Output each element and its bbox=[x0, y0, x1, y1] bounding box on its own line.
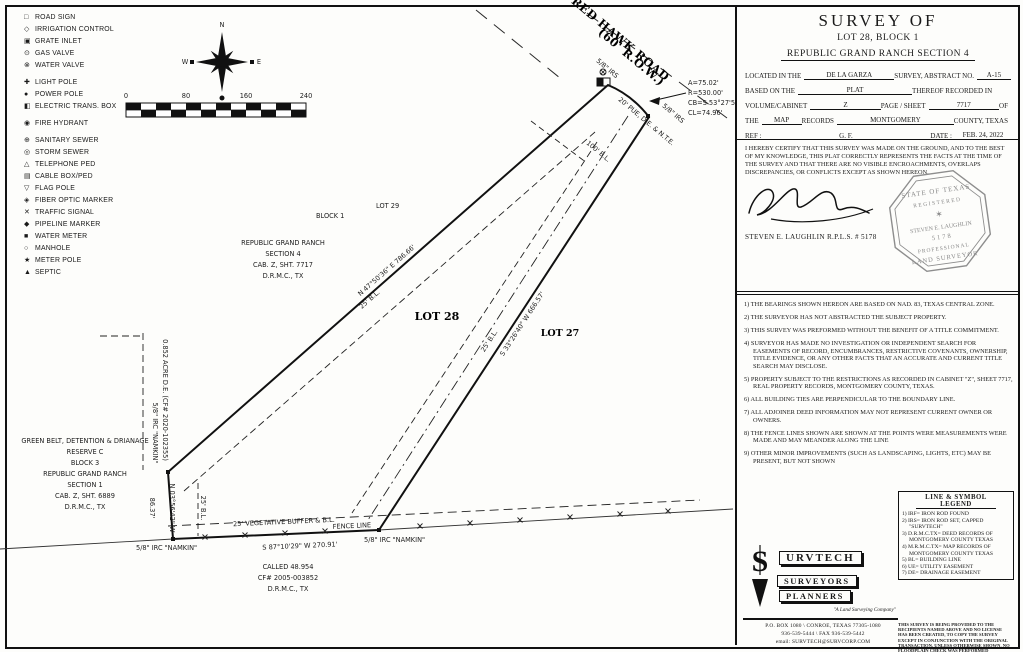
legend-label: FLAG POLE bbox=[35, 185, 75, 192]
legend-item: ▤CABLE BOX/PED bbox=[24, 170, 116, 182]
greenbelt-line7: D.R.M.C., TX bbox=[65, 503, 106, 511]
form-label: LOCATED IN THE bbox=[745, 72, 804, 80]
divider bbox=[737, 291, 1019, 292]
greenbelt-line4: REPUBLIC GRAND RANCH bbox=[43, 470, 127, 478]
legend-label: SEPTIC bbox=[35, 269, 61, 276]
form-label: VOLUME/CABINET bbox=[745, 102, 810, 110]
divider bbox=[737, 139, 1019, 140]
note-7: 7) ALL ADJOINER DEED INFORMATION MAY NOT… bbox=[744, 409, 1014, 424]
irrigation-control-icon: ◇ bbox=[24, 25, 35, 33]
compass-w-label: W bbox=[182, 58, 189, 66]
company-tagline: "A Land Surveying Company" bbox=[801, 607, 896, 613]
form-label: COUNTY, TEXAS bbox=[954, 117, 1011, 125]
legend-item: ✚LIGHT POLE bbox=[24, 76, 116, 88]
light-pole-icon: ✚ bbox=[24, 78, 35, 86]
storm-sewer-icon: ◎ bbox=[24, 148, 35, 156]
legend-item: ◈FIBER OPTIC MARKER bbox=[24, 194, 116, 206]
note-6: 6) ALL BUILDING TIES ARE PERPENDICULAR T… bbox=[744, 396, 1014, 404]
greenbelt-line1: GREEN BELT, DETENTION & DRIANAGE bbox=[21, 437, 148, 445]
company-address: P.O. BOX 1080 \ CONROE, TEXAS 77305-1080 bbox=[733, 623, 913, 629]
title-panel: SURVEY OF LOT 28, BLOCK 1 REPUBLIC GRAND… bbox=[735, 5, 1019, 645]
fire-hydrant-icon: ◉ bbox=[24, 119, 35, 127]
form-value-abstract: A-15 bbox=[977, 71, 1011, 80]
sheet-title: SURVEY OF bbox=[737, 11, 1019, 31]
legend-disclaimer: THIS SURVEY IS BEING PROVIDED TO THE REC… bbox=[898, 622, 1012, 652]
form-label: SURVEY, ABSTRACT NO. bbox=[894, 72, 977, 80]
scale-tick-240: 240 bbox=[300, 92, 313, 100]
bearing-west-label: N 03°56'42" W bbox=[168, 484, 176, 533]
road-sign-icon: □ bbox=[24, 14, 35, 21]
power-pole-icon: ● bbox=[24, 91, 35, 98]
form-row-volume: VOLUME/CABINET Z PAGE / SHEET 7717 OF bbox=[745, 101, 1011, 110]
curve-radius: R=530.00' bbox=[688, 89, 723, 97]
legend-label: FIBER OPTIC MARKER bbox=[35, 197, 113, 204]
subdivision-subtitle: REPUBLIC GRAND RANCH SECTION 4 bbox=[781, 49, 975, 61]
bearing-se-label: S 33°26'40" W 666.57' bbox=[498, 290, 546, 357]
bearing-west-distance: 86.37' bbox=[148, 498, 156, 519]
drainage-easement-area-label: 0.852 ACRE D.E. (CF# 2020-102355) bbox=[161, 339, 169, 461]
bearing-south-label: S 87°10'29" W 270.91' bbox=[262, 540, 338, 551]
legend-label: PIPELINE MARKER bbox=[35, 221, 100, 228]
curve-arc: A=75.02' bbox=[688, 79, 719, 87]
legend-label: GAS VALVE bbox=[35, 50, 74, 57]
legend-label: STORM SEWER bbox=[35, 149, 89, 156]
legend-label: ROAD SIGN bbox=[35, 14, 75, 21]
legend-item: ★METER POLE bbox=[24, 254, 116, 266]
road-row-label: (60' R.O.W.) bbox=[595, 25, 667, 89]
legend-item: ◉FIRE HYDRANT bbox=[24, 117, 116, 129]
legend-item: ○MANHOLE bbox=[24, 242, 116, 254]
legend-item: ◇IRRIGATION CONTROL bbox=[24, 23, 116, 35]
building-line-west-label: 25' B.L. bbox=[199, 496, 207, 521]
legend-item: □ROAD SIGN bbox=[24, 11, 116, 23]
curve-chord-length: CL=74.96' bbox=[688, 109, 723, 117]
legend-label: TRAFFIC SIGNAL bbox=[35, 209, 94, 216]
company-phone: 936-539-5444 \ FAX 936-539-5442 bbox=[733, 631, 913, 637]
legend-item: ⊗WATER VALVE bbox=[24, 59, 116, 71]
legend-item: ■WATER METER bbox=[24, 230, 116, 242]
line-legend-item: 2) IRS= IRON ROD SET, CAPPED "SURVTECH" bbox=[902, 518, 1010, 531]
legend-label: GRATE INLET bbox=[35, 38, 82, 45]
lot27-label: LOT 27 bbox=[541, 328, 580, 339]
adjoiner-block: CALLED 48.954 CF# 2005-003852 D.R.M.C., … bbox=[258, 563, 318, 593]
legend-label: FIRE HYDRANT bbox=[35, 120, 88, 127]
irc-west-label: 5/8" IRC "NAMKIN" bbox=[151, 402, 159, 463]
legend-label: ELECTRIC TRANS. BOX bbox=[35, 103, 116, 110]
form-row-records: THE MAP RECORDS MONTGOMERY COUNTY, TEXAS bbox=[745, 116, 1011, 125]
legend-label: SANITARY SEWER bbox=[35, 137, 99, 144]
form-label: RECORDS bbox=[802, 117, 837, 125]
note-3: 3) THIS SURVEY WAS PREFORMED WITHOUT THE… bbox=[744, 327, 1014, 335]
compass-e-label: E bbox=[257, 58, 261, 66]
note-1: 1) THE BEARINGS SHOWN HEREON ARE BASED O… bbox=[744, 301, 1014, 309]
company-email: email: SURVTECH@SURVCORP.COM bbox=[733, 639, 913, 645]
irs-east-label: 5/8" IRS bbox=[661, 102, 686, 125]
survtech-logo-icon: S bbox=[743, 545, 777, 615]
note-5: 5) PROPERTY SUBJECT TO THE RESTRICTIONS … bbox=[744, 376, 1014, 391]
title-block: SURVEY OF LOT 28, BLOCK 1 REPUBLIC GRAND… bbox=[737, 11, 1019, 61]
grate-inlet-icon: ▣ bbox=[24, 37, 35, 45]
legend-item: ▣GRATE INLET bbox=[24, 35, 116, 47]
divider bbox=[737, 294, 1019, 295]
form-label: THEREOF RECORDED IN bbox=[912, 87, 995, 95]
pue-easement-line bbox=[368, 116, 628, 520]
note-2: 2) THE SURVEYOR HAS NOT ABSTRACTED THE S… bbox=[744, 314, 1014, 322]
lot28-label: LOT 28 bbox=[415, 310, 460, 323]
legend-item: ⊙GAS VALVE bbox=[24, 47, 116, 59]
note-8: 8) THE FENCE LINES SHOWN ARE SHOWN AT TH… bbox=[744, 430, 1014, 445]
adjoiner-records: D.R.M.C., TX bbox=[268, 585, 309, 593]
company-badge-surveyors: SURVEYORS bbox=[777, 575, 857, 587]
line-legend-item: 1) IRF= IRON ROD FOUND bbox=[902, 511, 1010, 518]
septic-icon: ▲ bbox=[24, 269, 35, 276]
fiber-optic-marker-icon: ◈ bbox=[24, 196, 35, 204]
form-value-cabinet: Z bbox=[810, 101, 880, 110]
stamp-number: 5178 bbox=[931, 232, 953, 242]
subdivision-records: D.R.M.C., TX bbox=[263, 272, 304, 280]
pipeline-marker-icon: ◆ bbox=[24, 220, 35, 228]
greenbelt-line6: CAB. Z, SHT. 6889 bbox=[55, 492, 115, 500]
legend-item: ▽FLAG POLE bbox=[24, 182, 116, 194]
legend-label: CABLE BOX/PED bbox=[35, 173, 93, 180]
legend-item: △TELEPHONE PED bbox=[24, 158, 116, 170]
easement-lines bbox=[100, 116, 700, 536]
legend-label: POWER POLE bbox=[35, 91, 83, 98]
legend-item: ▲SEPTIC bbox=[24, 266, 116, 278]
meter-pole-icon: ★ bbox=[24, 256, 35, 264]
irc-south-left-label: 5/8" IRC "NAMKIN" bbox=[136, 544, 197, 552]
legend-label: MANHOLE bbox=[35, 245, 70, 252]
scale-tick-0: 0 bbox=[124, 92, 128, 100]
fence-line-label: FENCE LINE bbox=[333, 521, 372, 531]
legend-label: LIGHT POLE bbox=[35, 79, 77, 86]
water-valve-icon: ⊗ bbox=[24, 61, 35, 69]
stamp-registered: REGISTERED bbox=[913, 197, 962, 210]
legend-item: ◧ELECTRIC TRANS. BOX bbox=[24, 100, 116, 112]
legend-item: ◎STORM SEWER bbox=[24, 146, 116, 158]
form-label: PAGE / SHEET bbox=[881, 102, 929, 110]
surveyor-signature bbox=[743, 177, 883, 232]
lot-boundary bbox=[168, 85, 649, 539]
stamp-star-icon: ✶ bbox=[935, 209, 944, 220]
legend-label: WATER METER bbox=[35, 233, 87, 240]
irs-top-label: 5/8" IRS bbox=[595, 57, 620, 80]
note-9: 9) OTHER MINOR IMPROVEMENTS (SUCH AS LAN… bbox=[744, 450, 1014, 465]
subdivision-section: SECTION 4 bbox=[265, 250, 300, 258]
legend-label: METER POLE bbox=[35, 257, 81, 264]
line-legend-item: 3) D.R.M.C.TX= DEED RECORDS OF MONTGOMER… bbox=[902, 531, 1010, 544]
sanitary-sewer-icon: ⊕ bbox=[24, 136, 35, 144]
flag-pole-icon: ▽ bbox=[24, 184, 35, 192]
legend-label: IRRIGATION CONTROL bbox=[35, 26, 114, 33]
telephone-ped-icon: △ bbox=[24, 160, 35, 168]
adjoiner-cf: CF# 2005-003852 bbox=[258, 574, 318, 582]
subdivision-name: REPUBLIC GRAND RANCH bbox=[241, 239, 325, 247]
form-value-plat: PLAT bbox=[798, 86, 912, 95]
company-name: URVTECH bbox=[779, 551, 862, 565]
curve-chord-bearing: CB=S 53°27'56" E bbox=[688, 99, 735, 107]
compass-n-label: N bbox=[220, 21, 225, 29]
traffic-signal-icon: ✕ bbox=[24, 208, 35, 216]
cable-box-icon: ▤ bbox=[24, 172, 35, 180]
building-line-100-label: 100' B.L. bbox=[585, 139, 612, 164]
manhole-icon: ○ bbox=[24, 245, 35, 252]
subdivision-cabinet: CAB. Z, SHT. 7717 bbox=[253, 261, 313, 269]
form-row-located: LOCATED IN THE DE LA GARZA SURVEY, ABSTR… bbox=[745, 71, 1011, 80]
surveyor-stamp: STATE OF TEXAS REGISTERED ✶ STEVEN E. LA… bbox=[865, 157, 1015, 289]
symbol-legend: □ROAD SIGN ◇IRRIGATION CONTROL ▣GRATE IN… bbox=[24, 11, 116, 278]
line-legend-title2: LEGEND bbox=[916, 501, 996, 509]
form-label: THE bbox=[745, 117, 762, 125]
block1-label: BLOCK 1 bbox=[316, 212, 344, 220]
legend-item: ✕TRAFFIC SIGNAL bbox=[24, 206, 116, 218]
adjoiner-called: CALLED 48.954 bbox=[263, 563, 314, 571]
greenbelt-line5: SECTION 1 bbox=[67, 481, 102, 489]
scale-tick-160: 160 bbox=[240, 92, 253, 100]
irc-south-right-label: 5/8" IRC "NAMKIN" bbox=[364, 536, 425, 544]
greenbelt-line2: RESERVE C bbox=[67, 448, 104, 456]
form-row-based: BASED ON THE PLAT THEREOF RECORDED IN bbox=[745, 86, 1011, 95]
form-value-county-records: MONTGOMERY bbox=[837, 116, 954, 125]
line-legend-item: 5) BL= BUILDING LINE bbox=[902, 557, 1010, 564]
survey-sheet: N E S W 0 80 160 240 RED HAWK ROAD (60' … bbox=[0, 0, 1023, 652]
line-legend-item: 7) DE= DRAINAGE EASEMENT bbox=[902, 570, 1010, 577]
form-value-survey-name: DE LA GARZA bbox=[804, 71, 894, 80]
lot-subtitle: LOT 28, BLOCK 1 bbox=[737, 33, 1019, 43]
legend-label: WATER VALVE bbox=[35, 62, 84, 69]
surveyor-name: STEVEN E. LAUGHLIN R.P.L.S. # 5178 bbox=[745, 233, 877, 241]
note-4: 4) SURVEYOR HAS MADE NO INVESTIGATION OR… bbox=[744, 340, 1014, 370]
form-label: OF bbox=[999, 102, 1011, 110]
greenbelt-block: GREEN BELT, DETENTION & DRIANAGE RESERVE… bbox=[21, 437, 148, 511]
scale-bar: 0 80 160 240 bbox=[124, 92, 312, 117]
form-value-sheet: 7717 bbox=[929, 101, 999, 110]
legend-item: ◆PIPELINE MARKER bbox=[24, 218, 116, 230]
vegetative-buffer-label: 25' VEGETATIVE BUFFER & B.L. bbox=[233, 516, 335, 528]
lot29-label: LOT 29 bbox=[376, 202, 399, 210]
legend-label: TELEPHONE PED bbox=[35, 161, 95, 168]
curve-data-block: A=75.02' R=530.00' CB=S 53°27'56" E CL=7… bbox=[688, 79, 735, 117]
line-legend-item: 4) M.R.M.C.TX= MAP RECORDS OF MONTGOMERY… bbox=[902, 544, 1010, 557]
legend-item: ⊕SANITARY SEWER bbox=[24, 134, 116, 146]
electric-trans-box-icon: ◧ bbox=[24, 102, 35, 110]
bearing-nw-label: N 47°50'36" E 786.66' bbox=[356, 243, 417, 298]
survey-notes: 1) THE BEARINGS SHOWN HEREON ARE BASED O… bbox=[744, 301, 1014, 471]
scale-tick-80: 80 bbox=[182, 92, 190, 100]
water-meter-icon: ■ bbox=[24, 233, 35, 240]
form-label: BASED ON THE bbox=[745, 87, 798, 95]
line-symbol-legend: LINE & SYMBOL LEGEND 1) IRF= IRON ROD FO… bbox=[898, 491, 1014, 580]
line-legend-title: LINE & SYMBOL bbox=[902, 494, 1010, 501]
gas-valve-icon: ⊙ bbox=[24, 49, 35, 57]
greenbelt-line3: BLOCK 3 bbox=[71, 459, 99, 467]
legend-item: ●POWER POLE bbox=[24, 88, 116, 100]
company-badge-planners: PLANNERS bbox=[779, 590, 851, 602]
company-divider bbox=[743, 618, 898, 620]
subdivision-block: REPUBLIC GRAND RANCH SECTION 4 CAB. Z, S… bbox=[241, 239, 325, 280]
form-value-map: MAP bbox=[762, 116, 802, 125]
